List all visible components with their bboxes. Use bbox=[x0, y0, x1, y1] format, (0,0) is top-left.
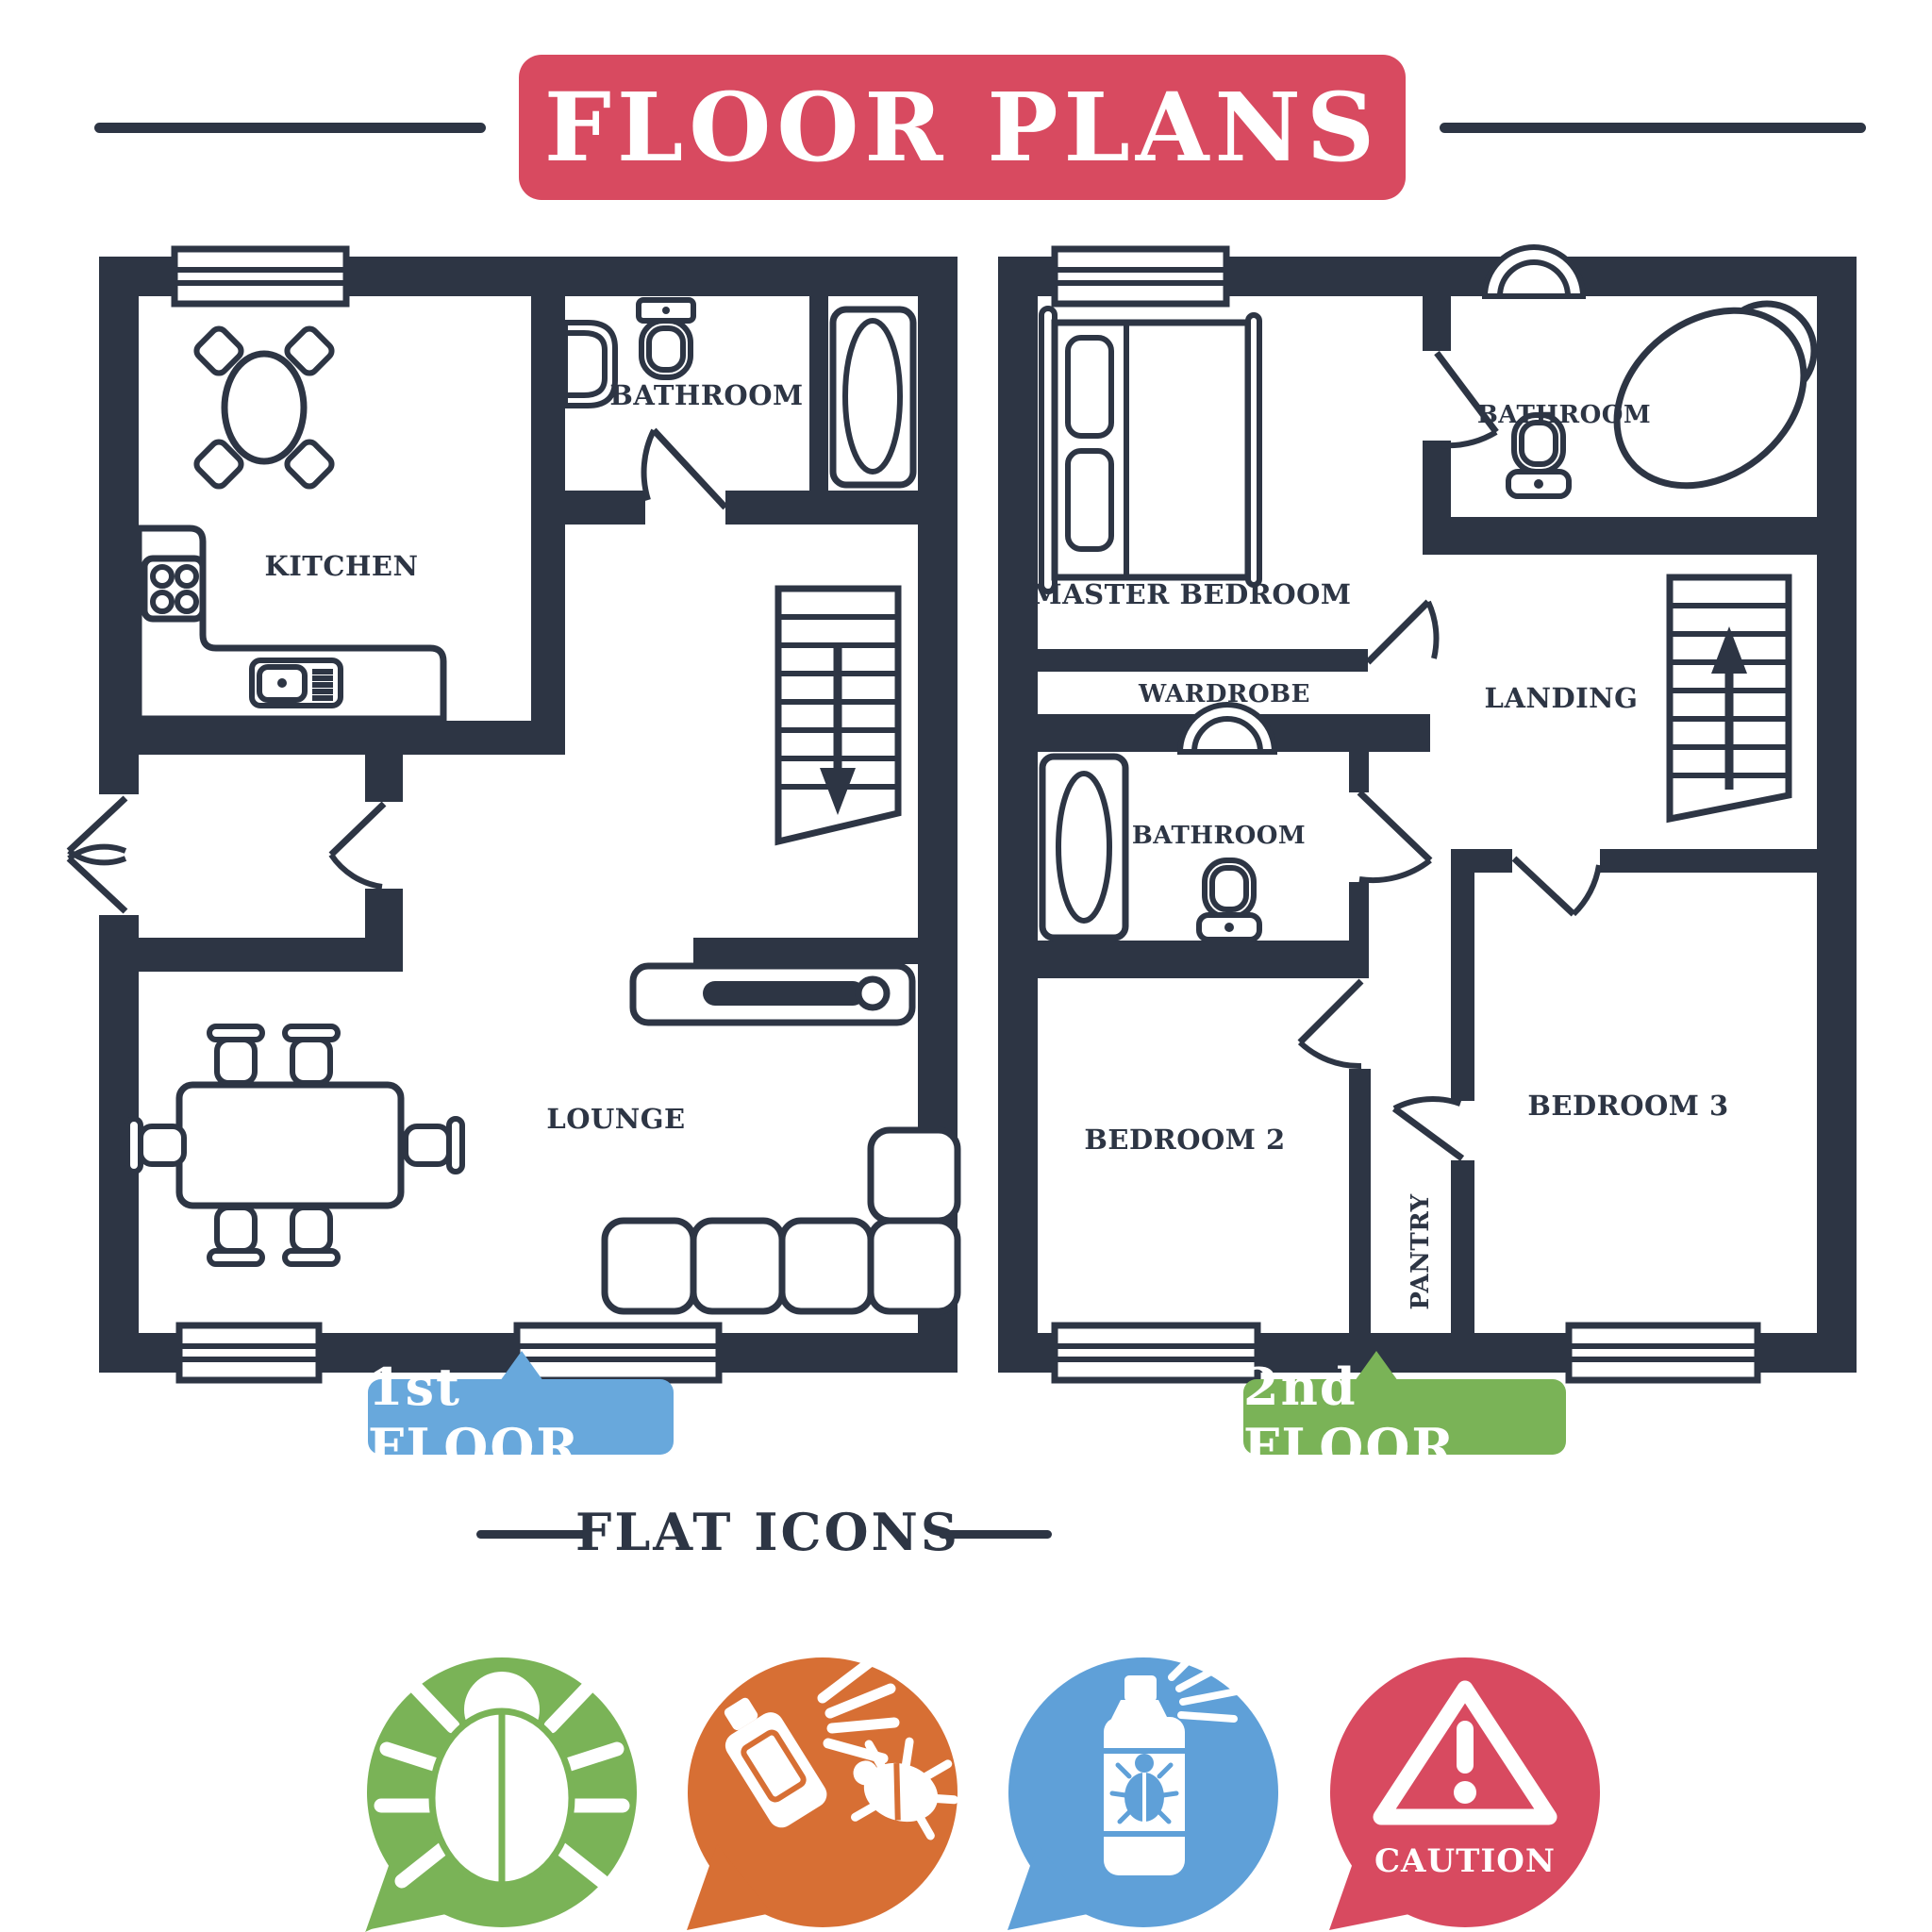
room-label-lounge: LOUNGE bbox=[546, 1103, 685, 1135]
bug-icon bbox=[365, 1657, 637, 1932]
window bbox=[1055, 1325, 1257, 1380]
floor2-badge: 2nd FLOOR bbox=[1243, 1379, 1566, 1455]
master-bedroom-door bbox=[1368, 602, 1437, 662]
room-label-wardrobe: WARDROBE bbox=[1138, 680, 1310, 708]
toilet-icon bbox=[639, 300, 693, 377]
entry-double-door bbox=[69, 798, 125, 911]
corner-bathtub-icon bbox=[1582, 275, 1838, 522]
title-banner: FLOOR PLANS bbox=[519, 55, 1406, 200]
toilet-icon bbox=[1199, 860, 1259, 940]
washbasin-icon bbox=[1180, 705, 1274, 752]
room-label-pantry: PANTRY bbox=[1407, 1193, 1435, 1309]
washbasin-icon bbox=[1485, 247, 1583, 296]
staircase-down bbox=[778, 589, 898, 841]
chair bbox=[127, 1119, 184, 1172]
floor2-badge-label: 2nd FLOOR bbox=[1243, 1357, 1566, 1477]
tv-unit bbox=[633, 966, 912, 1023]
hall-door bbox=[331, 804, 384, 887]
room-label-bathroom: BATHROOM bbox=[609, 379, 803, 411]
caution-label: CAUTION bbox=[1374, 1842, 1556, 1880]
bedroom2-door bbox=[1300, 981, 1361, 1066]
kitchen-table bbox=[193, 325, 335, 490]
flat-icons-row: CAUTION bbox=[0, 1641, 1932, 1932]
bed bbox=[1041, 308, 1259, 591]
room-label-kitchen: KITCHEN bbox=[265, 550, 419, 582]
floor-plans-poster: FLOOR PLANS bbox=[0, 0, 1932, 1932]
chair bbox=[209, 1207, 262, 1264]
chair bbox=[285, 1207, 338, 1264]
sofa bbox=[605, 1130, 958, 1311]
room-label-bedroom3: BEDROOM 3 bbox=[1527, 1090, 1728, 1122]
chair bbox=[209, 1026, 262, 1083]
ensuite-bathroom-door bbox=[1437, 353, 1496, 445]
bathtub-icon bbox=[833, 309, 913, 485]
sink-icon bbox=[252, 660, 341, 706]
arrow-up-icon bbox=[1711, 626, 1747, 790]
stove-icon bbox=[144, 558, 203, 619]
divider-line bbox=[1440, 123, 1866, 133]
room-label-landing: LANDING bbox=[1485, 682, 1639, 714]
spray-bug-icon bbox=[687, 1657, 967, 1930]
dining-table bbox=[127, 1026, 462, 1264]
section-heading: FLAT ICONS bbox=[575, 1502, 953, 1562]
floor1-badge: 1st FLOOR bbox=[368, 1379, 674, 1455]
window bbox=[179, 1325, 319, 1380]
insecticide-can-icon bbox=[1008, 1628, 1278, 1930]
bathtub-icon bbox=[1042, 757, 1125, 938]
bedroom3-door bbox=[1514, 858, 1599, 914]
page-title: FLOOR PLANS bbox=[544, 72, 1380, 183]
floor-plan-second: MASTER BEDROOM BATHROOM WARDROBE BATHROO… bbox=[998, 257, 1861, 1379]
floor-plan-first: KITCHEN BATHROOM LOUNGE bbox=[99, 257, 962, 1379]
window bbox=[175, 249, 346, 304]
family-bathroom-door bbox=[1359, 792, 1430, 880]
chair bbox=[406, 1119, 462, 1172]
badge-pointer bbox=[500, 1351, 543, 1381]
washbasin-icon bbox=[565, 323, 615, 406]
divider-line bbox=[476, 1530, 590, 1539]
divider-line bbox=[94, 123, 486, 133]
badge-pointer bbox=[1355, 1351, 1398, 1381]
staircase-up bbox=[1670, 577, 1789, 819]
room-label-master-bedroom: MASTER BEDROOM bbox=[1032, 578, 1352, 610]
room-label-bedroom2: BEDROOM 2 bbox=[1084, 1124, 1285, 1156]
pantry-door bbox=[1394, 1099, 1462, 1158]
window bbox=[1055, 249, 1226, 304]
room-label-bathroom-ensuite: BATHROOM bbox=[1477, 401, 1651, 429]
chair bbox=[285, 1026, 338, 1083]
window bbox=[1569, 1325, 1757, 1380]
caution-icon: CAUTION bbox=[1329, 1657, 1600, 1930]
room-label-bathroom-family: BATHROOM bbox=[1132, 822, 1306, 850]
bathroom-door bbox=[644, 430, 725, 508]
